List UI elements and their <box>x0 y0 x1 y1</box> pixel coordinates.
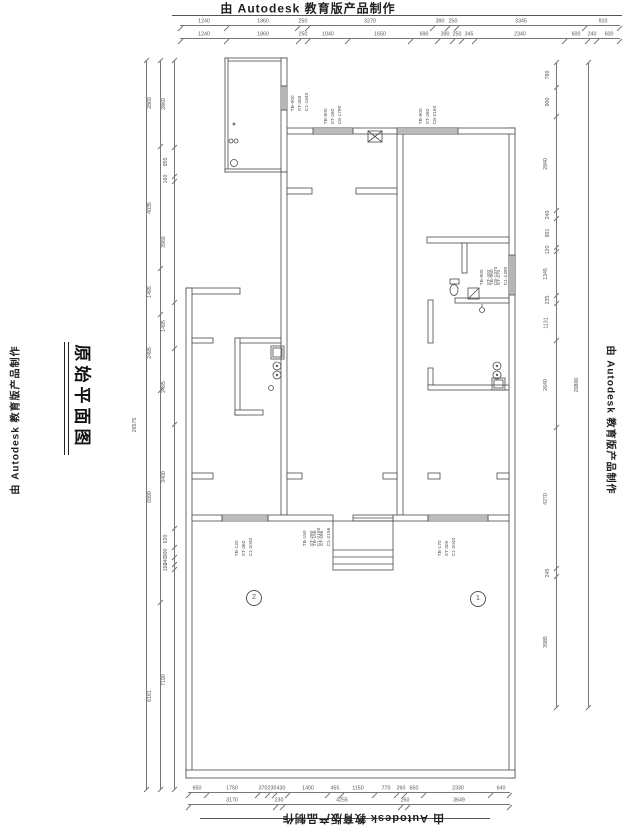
dim-segment: 2495 <box>162 349 174 425</box>
dim-value: 690 <box>420 32 429 37</box>
dim-segment: 235 <box>542 296 556 304</box>
dim-value: 6990 <box>148 491 153 503</box>
dim-segment: 230 <box>268 782 275 792</box>
dim-value: 1240 <box>198 19 210 24</box>
dim-chain-left-outer: 26575 <box>134 60 147 790</box>
dim-value: 7190 <box>162 674 167 686</box>
dim-segment: 455 <box>328 782 341 792</box>
dim-segment: 2330 <box>424 782 492 792</box>
dim-value: 250 <box>299 19 308 24</box>
dim-segment: 26575 <box>134 60 146 790</box>
bath-door-icon <box>468 288 479 299</box>
dim-value: 640 <box>496 786 505 791</box>
dim-value: 1240 <box>198 32 210 37</box>
top-left-room-walls <box>225 58 287 172</box>
dim-segment: 240 <box>542 211 556 219</box>
dim-segment: 901 <box>542 219 556 249</box>
dim-segment: 1040 <box>308 28 348 38</box>
dim-segment: 770 <box>375 782 397 792</box>
dim-chain-top-2: 1240186025010401650690390250345234060024… <box>180 28 620 39</box>
axis-marker-2: 2 <box>246 590 262 606</box>
dim-segment: 430 <box>275 782 287 792</box>
dim-segment: 250 <box>299 28 309 38</box>
dim-segment: 600 <box>597 28 620 38</box>
dim-value: 650 <box>410 786 419 791</box>
dim-segment: 245 <box>542 569 556 577</box>
dim-value: 390 <box>436 19 445 24</box>
dim-segment: 1860 <box>227 28 298 38</box>
dim-value: 2860 <box>148 98 153 110</box>
dim-segment: 955 <box>162 148 174 177</box>
kitchen-stove-icon <box>269 362 282 391</box>
window-label-top-b: TB-900 ST-280 C8-2160 <box>418 98 439 125</box>
dim-value: 1131 <box>544 317 549 328</box>
autodesk-watermark-bottom: 由 Autodesk 教育版产品制作 <box>282 811 444 827</box>
dim-value: 6161 <box>148 691 153 703</box>
window-label-topleft-room: TB-900 ST-305 C1-1840 <box>290 85 311 112</box>
dim-value: 620 <box>164 535 169 544</box>
dim-value: 3649 <box>453 798 465 803</box>
autodesk-watermark-left: 由 Autodesk 教育版产品制作 <box>7 345 22 494</box>
dim-value: 240 <box>588 32 597 37</box>
dim-value: 20800 <box>574 378 579 393</box>
dim-segment: 6161 <box>148 603 160 790</box>
dim-segment: 390 <box>433 15 448 25</box>
dim-segment: 7190 <box>162 570 174 790</box>
dim-value: 2640 <box>544 379 549 391</box>
dim-segment: 1860 <box>227 15 298 25</box>
dim-value: 370 <box>259 786 268 791</box>
dim-value: 1040 <box>322 32 334 37</box>
dim-segment: 600 <box>565 28 588 38</box>
dim-segment: 260 <box>401 794 408 804</box>
toilet-icon <box>450 279 459 296</box>
dim-value: 3985 <box>544 637 549 649</box>
dim-value: 1495 <box>148 286 153 298</box>
windows <box>222 86 515 521</box>
dim-value: 4035 <box>148 202 153 214</box>
dim-value: 3345 <box>515 19 527 24</box>
dim-segment: 4035 <box>148 147 160 270</box>
dim-value: 430 <box>277 786 286 791</box>
dim-value: 600 <box>572 32 581 37</box>
dim-value: 250 <box>299 32 308 37</box>
dim-segment: 3270 <box>308 15 433 25</box>
dim-value: 955 <box>164 158 169 167</box>
dim-segment: 1240 <box>180 15 227 25</box>
dim-value: 3270 <box>365 19 377 24</box>
dim-value: 900 <box>546 98 551 107</box>
dim-segment: 3966 <box>162 182 174 303</box>
dim-segment: 780 <box>542 62 556 88</box>
dim-value: 2495 <box>162 381 167 393</box>
dim-segment: 900 <box>542 88 556 118</box>
steps-icon <box>333 521 393 570</box>
dim-segment: 6990 <box>148 391 160 603</box>
dim-value: 2495 <box>148 347 153 359</box>
dim-segment: 2340 <box>475 28 565 38</box>
dim-segment: 2840 <box>542 117 556 210</box>
dim-segment: 1495 <box>148 269 160 314</box>
outer-walls <box>186 128 515 778</box>
dim-segment: 240 <box>588 28 597 38</box>
dim-value: 1750 <box>226 786 238 791</box>
dim-segment: 250 <box>298 15 308 25</box>
dim-value: 26575 <box>132 418 137 433</box>
dim-value: 1860 <box>257 32 269 37</box>
dim-value: 1400 <box>302 786 314 791</box>
dim-segment: 1345 <box>542 252 556 296</box>
dim-value: 1495 <box>162 320 167 332</box>
kitchen-sink-icon <box>271 346 284 359</box>
dim-segment: 620 <box>162 529 174 548</box>
window-label-bottom-right: TB-170 ST-300 C1-2040 <box>437 530 458 557</box>
dim-segment: 2495 <box>148 315 160 391</box>
dim-value: 4255 <box>336 798 348 803</box>
dim-value: 2840 <box>544 158 549 170</box>
dim-value: 3400 <box>162 472 167 484</box>
dim-value: 2340 <box>514 32 526 37</box>
dim-segment: 3170 <box>188 794 276 804</box>
dim-segment: 20800 <box>574 62 588 708</box>
dim-value: 901 <box>546 229 551 238</box>
dim-segment: 3400 <box>162 425 174 529</box>
dim-chain-bottom-2: 317023042552603649 <box>188 794 510 805</box>
dim-segment: 3649 <box>408 794 510 804</box>
dim-segment: 3345 <box>457 15 585 25</box>
title-block-rule-inner <box>68 342 69 455</box>
dim-segment: 345 <box>462 28 475 38</box>
window-label-bottom-left: TB-120 ST-360 C1-2040 <box>234 530 255 557</box>
autodesk-watermark-right: 由 Autodesk 教育版产品制作 <box>605 345 620 494</box>
title-block-rule-outer <box>64 342 65 455</box>
dim-value: 2330 <box>452 786 464 791</box>
dim-value: 3170 <box>226 798 238 803</box>
dim-chain-left-inner: 2860955160396614952495340062030024016071… <box>162 60 175 790</box>
dim-chain-left-mid: 286040351495249569906161 <box>148 60 161 790</box>
dim-value: 250 <box>453 32 462 37</box>
dim-segment: 690 <box>411 28 437 38</box>
dim-segment: 1131 <box>542 304 556 341</box>
window-label-top-a: TB-900 ST-280 C8-1790 <box>323 98 344 125</box>
window-label-bath-b: TB-960 ST-270 C1-1390 <box>489 259 510 286</box>
dim-segment: 4270 <box>542 428 556 569</box>
dim-value: 4270 <box>544 493 549 505</box>
dim-value: 2860 <box>162 98 167 110</box>
floor-drain-icon <box>480 304 485 313</box>
dim-value: 345 <box>464 32 473 37</box>
dim-value: 1650 <box>374 32 386 37</box>
dim-value: 1150 <box>353 786 364 791</box>
dim-segment: 1650 <box>348 28 411 38</box>
dim-segment: 4255 <box>283 794 401 804</box>
dim-value: 455 <box>331 786 340 791</box>
cad-canvas: { "branding": { "top": "由 Autodesk 教育版产品… <box>0 0 630 830</box>
dim-segment: 1240 <box>180 28 227 38</box>
dim-value: 1345 <box>544 269 549 281</box>
dim-segment: 390 <box>438 28 453 38</box>
dim-value: 390 <box>441 32 450 37</box>
dim-chain-right-outer: 20800 <box>574 62 589 708</box>
dim-segment: 250 <box>453 28 463 38</box>
dim-segment: 650 <box>405 782 424 792</box>
dim-segment: 1400 <box>288 782 329 792</box>
dim-segment: 3985 <box>542 577 556 708</box>
dim-segment: 650 <box>188 782 207 792</box>
door-label-center-b: TB-156 ST-296 C1-2156 <box>312 520 333 547</box>
dim-value: 770 <box>382 786 391 791</box>
dim-value: 780 <box>546 70 551 79</box>
dim-segment: 910 <box>585 15 620 25</box>
dim-chain-top-1: 1240186025032703902503345910 <box>180 15 620 26</box>
dim-segment: 2640 <box>542 341 556 428</box>
dim-segment: 250 <box>448 15 458 25</box>
dim-value: 650 <box>193 786 202 791</box>
dim-segment: 1750 <box>207 782 258 792</box>
dim-value: 3966 <box>162 237 167 249</box>
dim-segment: 1495 <box>162 303 174 349</box>
page-title: 原始平面图 <box>72 345 97 450</box>
dim-value: 250 <box>448 19 457 24</box>
laundry-fixtures-icon <box>229 123 238 167</box>
dim-segment: 2860 <box>162 60 174 148</box>
dim-chain-bottom-1: 6501750370230430140045511507702606502330… <box>188 782 510 793</box>
dim-segment: 2860 <box>148 60 160 147</box>
axis-marker-1: 1 <box>470 591 486 607</box>
dim-chain-right-inner: 7809002840240901120134523511312640427024… <box>542 62 557 708</box>
dim-value: 1860 <box>257 19 269 24</box>
dim-value: 600 <box>604 32 613 37</box>
interior-walls <box>192 134 509 515</box>
dim-value: 910 <box>598 19 607 24</box>
dim-segment: 260 <box>397 782 405 792</box>
dim-segment: 1150 <box>342 782 375 792</box>
dim-segment: 640 <box>491 782 510 792</box>
